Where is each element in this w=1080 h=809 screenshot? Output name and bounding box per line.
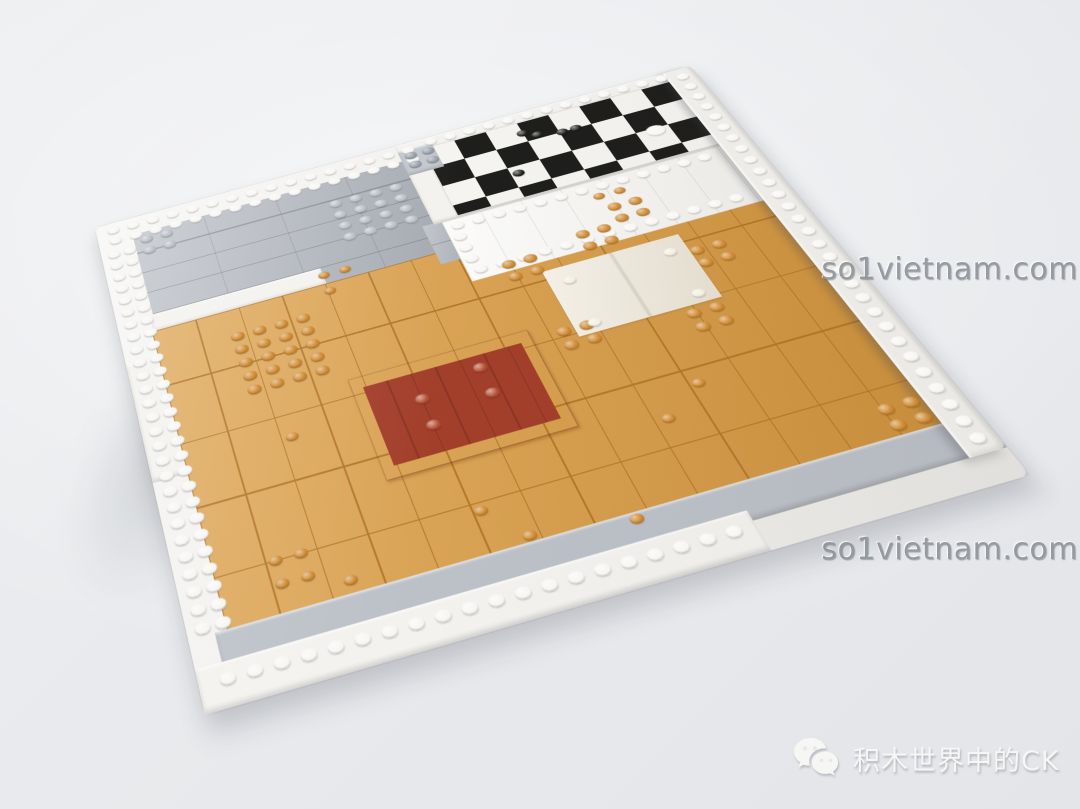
lego-baseplate-photo: so1vietnam.com so1vietnam.com 积木世界中的CK: [0, 0, 1080, 809]
credit-text: 积木世界中的CK: [853, 739, 1060, 778]
wechat-credit: 积木世界中的CK: [792, 736, 1060, 780]
watermark-top-right: so1vietnam.com: [821, 252, 1078, 287]
photo-page: { "image_type": "photograph", "subject":…: [0, 0, 1080, 809]
wechat-icon: [792, 736, 844, 780]
watermark-middle-right: so1vietnam.com: [821, 532, 1078, 567]
